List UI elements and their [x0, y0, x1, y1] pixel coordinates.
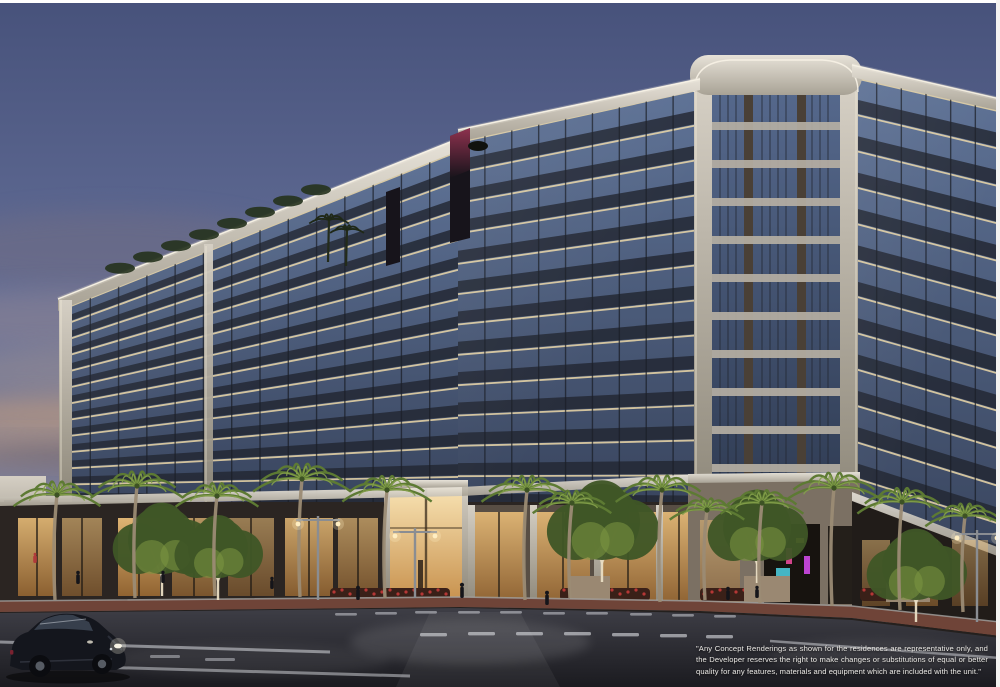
planter-box: [744, 576, 790, 602]
pedestrian: [726, 587, 730, 600]
rendering-canvas: [0, 0, 1000, 687]
pedestrian: [545, 591, 549, 605]
architectural-rendering: "Any Concept Renderings as shown for the…: [0, 0, 1000, 687]
disclaimer-text: "Any Concept Renderings as shown for the…: [696, 643, 988, 677]
facade-wing: [458, 88, 700, 509]
pedestrian: [161, 571, 165, 583]
pedestrian: [33, 553, 37, 563]
car-taillight: [10, 650, 13, 655]
pedestrian: [76, 571, 80, 584]
facade-wing: [852, 76, 1000, 560]
tower-cornice: [690, 55, 862, 95]
pedestrian: [356, 586, 360, 600]
pedestrian: [460, 583, 464, 598]
corner-tower: [690, 55, 862, 512]
car-emblem: [110, 648, 113, 651]
roof-plant: [468, 141, 488, 151]
pedestrian: [270, 577, 274, 589]
planter-box: [570, 576, 610, 602]
frame-border-top: [0, 0, 1000, 3]
pedestrian: [755, 586, 759, 598]
frame-border-right: [996, 0, 1000, 687]
